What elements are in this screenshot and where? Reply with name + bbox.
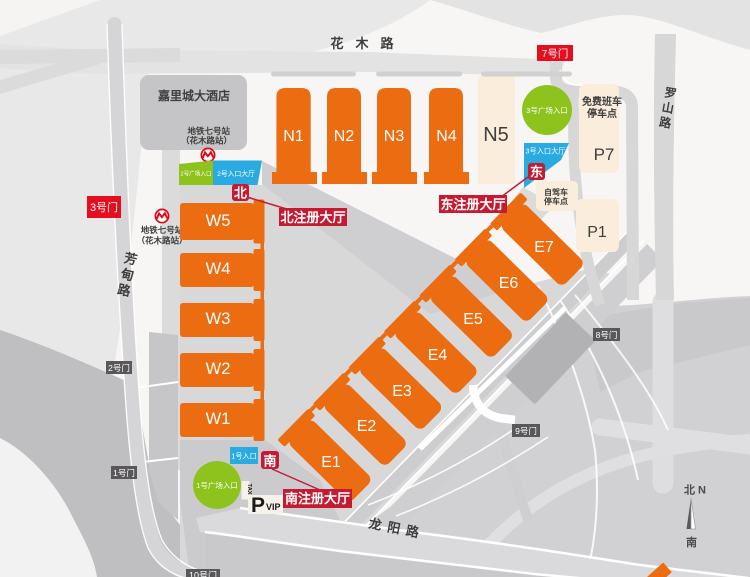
svg-text:E2: E2 (357, 418, 377, 435)
svg-text:3号门: 3号门 (90, 200, 118, 214)
svg-text:自驾车: 自驾车 (544, 187, 568, 197)
svg-text:嘉里城大酒店: 嘉里城大酒店 (157, 88, 230, 103)
svg-text:2号入口大厅: 2号入口大厅 (217, 169, 255, 178)
svg-text:1号门: 1号门 (113, 468, 135, 478)
svg-text:E1: E1 (321, 454, 341, 471)
svg-text:E7: E7 (534, 239, 554, 256)
svg-text:E5: E5 (463, 311, 483, 328)
svg-text:N1: N1 (283, 128, 304, 145)
svg-text:南: 南 (263, 454, 276, 469)
svg-text:E3: E3 (392, 383, 412, 400)
svg-text:1号广场入口: 1号广场入口 (196, 480, 238, 490)
svg-text:P7: P7 (594, 145, 615, 164)
svg-text:2号门: 2号门 (108, 363, 130, 373)
svg-text:10号门: 10号门 (189, 570, 217, 577)
svg-text:W1: W1 (206, 410, 231, 428)
svg-text:3号入口大厅: 3号入口大厅 (526, 147, 566, 156)
svg-text:P1: P1 (587, 224, 607, 241)
svg-text:花木路: 花木路 (330, 36, 405, 51)
svg-text:VIP: VIP (266, 502, 281, 512)
svg-text:东: 东 (530, 165, 543, 180)
svg-text:W5: W5 (206, 212, 231, 230)
svg-text:北 N: 北 N (684, 483, 706, 497)
svg-text:2号广场入口: 2号广场入口 (180, 170, 211, 178)
svg-text:N2: N2 (334, 128, 355, 145)
svg-text:北: 北 (234, 186, 247, 201)
svg-text:N5: N5 (483, 124, 509, 146)
svg-text:3号广场入口: 3号广场入口 (526, 105, 568, 115)
svg-text:7号门: 7号门 (542, 47, 569, 60)
svg-text:E6: E6 (499, 275, 519, 292)
svg-text:P: P (251, 494, 265, 517)
svg-text:N3: N3 (384, 128, 405, 145)
svg-text:停车点: 停车点 (544, 196, 568, 206)
svg-text:（花木路站）: （花木路站） (136, 236, 187, 246)
svg-text:N4: N4 (436, 128, 457, 145)
svg-text:免费班车: 免费班车 (582, 95, 622, 108)
svg-text:南注册大厅: 南注册大厅 (285, 491, 350, 506)
svg-text:停车点: 停车点 (587, 107, 617, 120)
svg-text:9号门: 9号门 (515, 426, 537, 436)
svg-text:1号入口: 1号入口 (231, 452, 257, 461)
svg-text:8号门: 8号门 (596, 330, 618, 340)
svg-text:（花木路站）: （花木路站） (181, 136, 232, 146)
svg-text:W2: W2 (206, 360, 231, 378)
svg-text:北注册大厅: 北注册大厅 (280, 210, 345, 225)
svg-text:山: 山 (661, 99, 675, 116)
svg-text:罗: 罗 (663, 84, 677, 101)
svg-text:地铁七号站: 地铁七号站 (187, 126, 230, 136)
svg-text:东注册大厅: 东注册大厅 (440, 197, 505, 212)
svg-text:W3: W3 (206, 310, 231, 328)
svg-text:地铁七号站: 地铁七号站 (141, 225, 184, 235)
svg-text:E4: E4 (428, 347, 448, 364)
svg-text:南: 南 (686, 535, 697, 549)
svg-text:W4: W4 (206, 260, 231, 278)
